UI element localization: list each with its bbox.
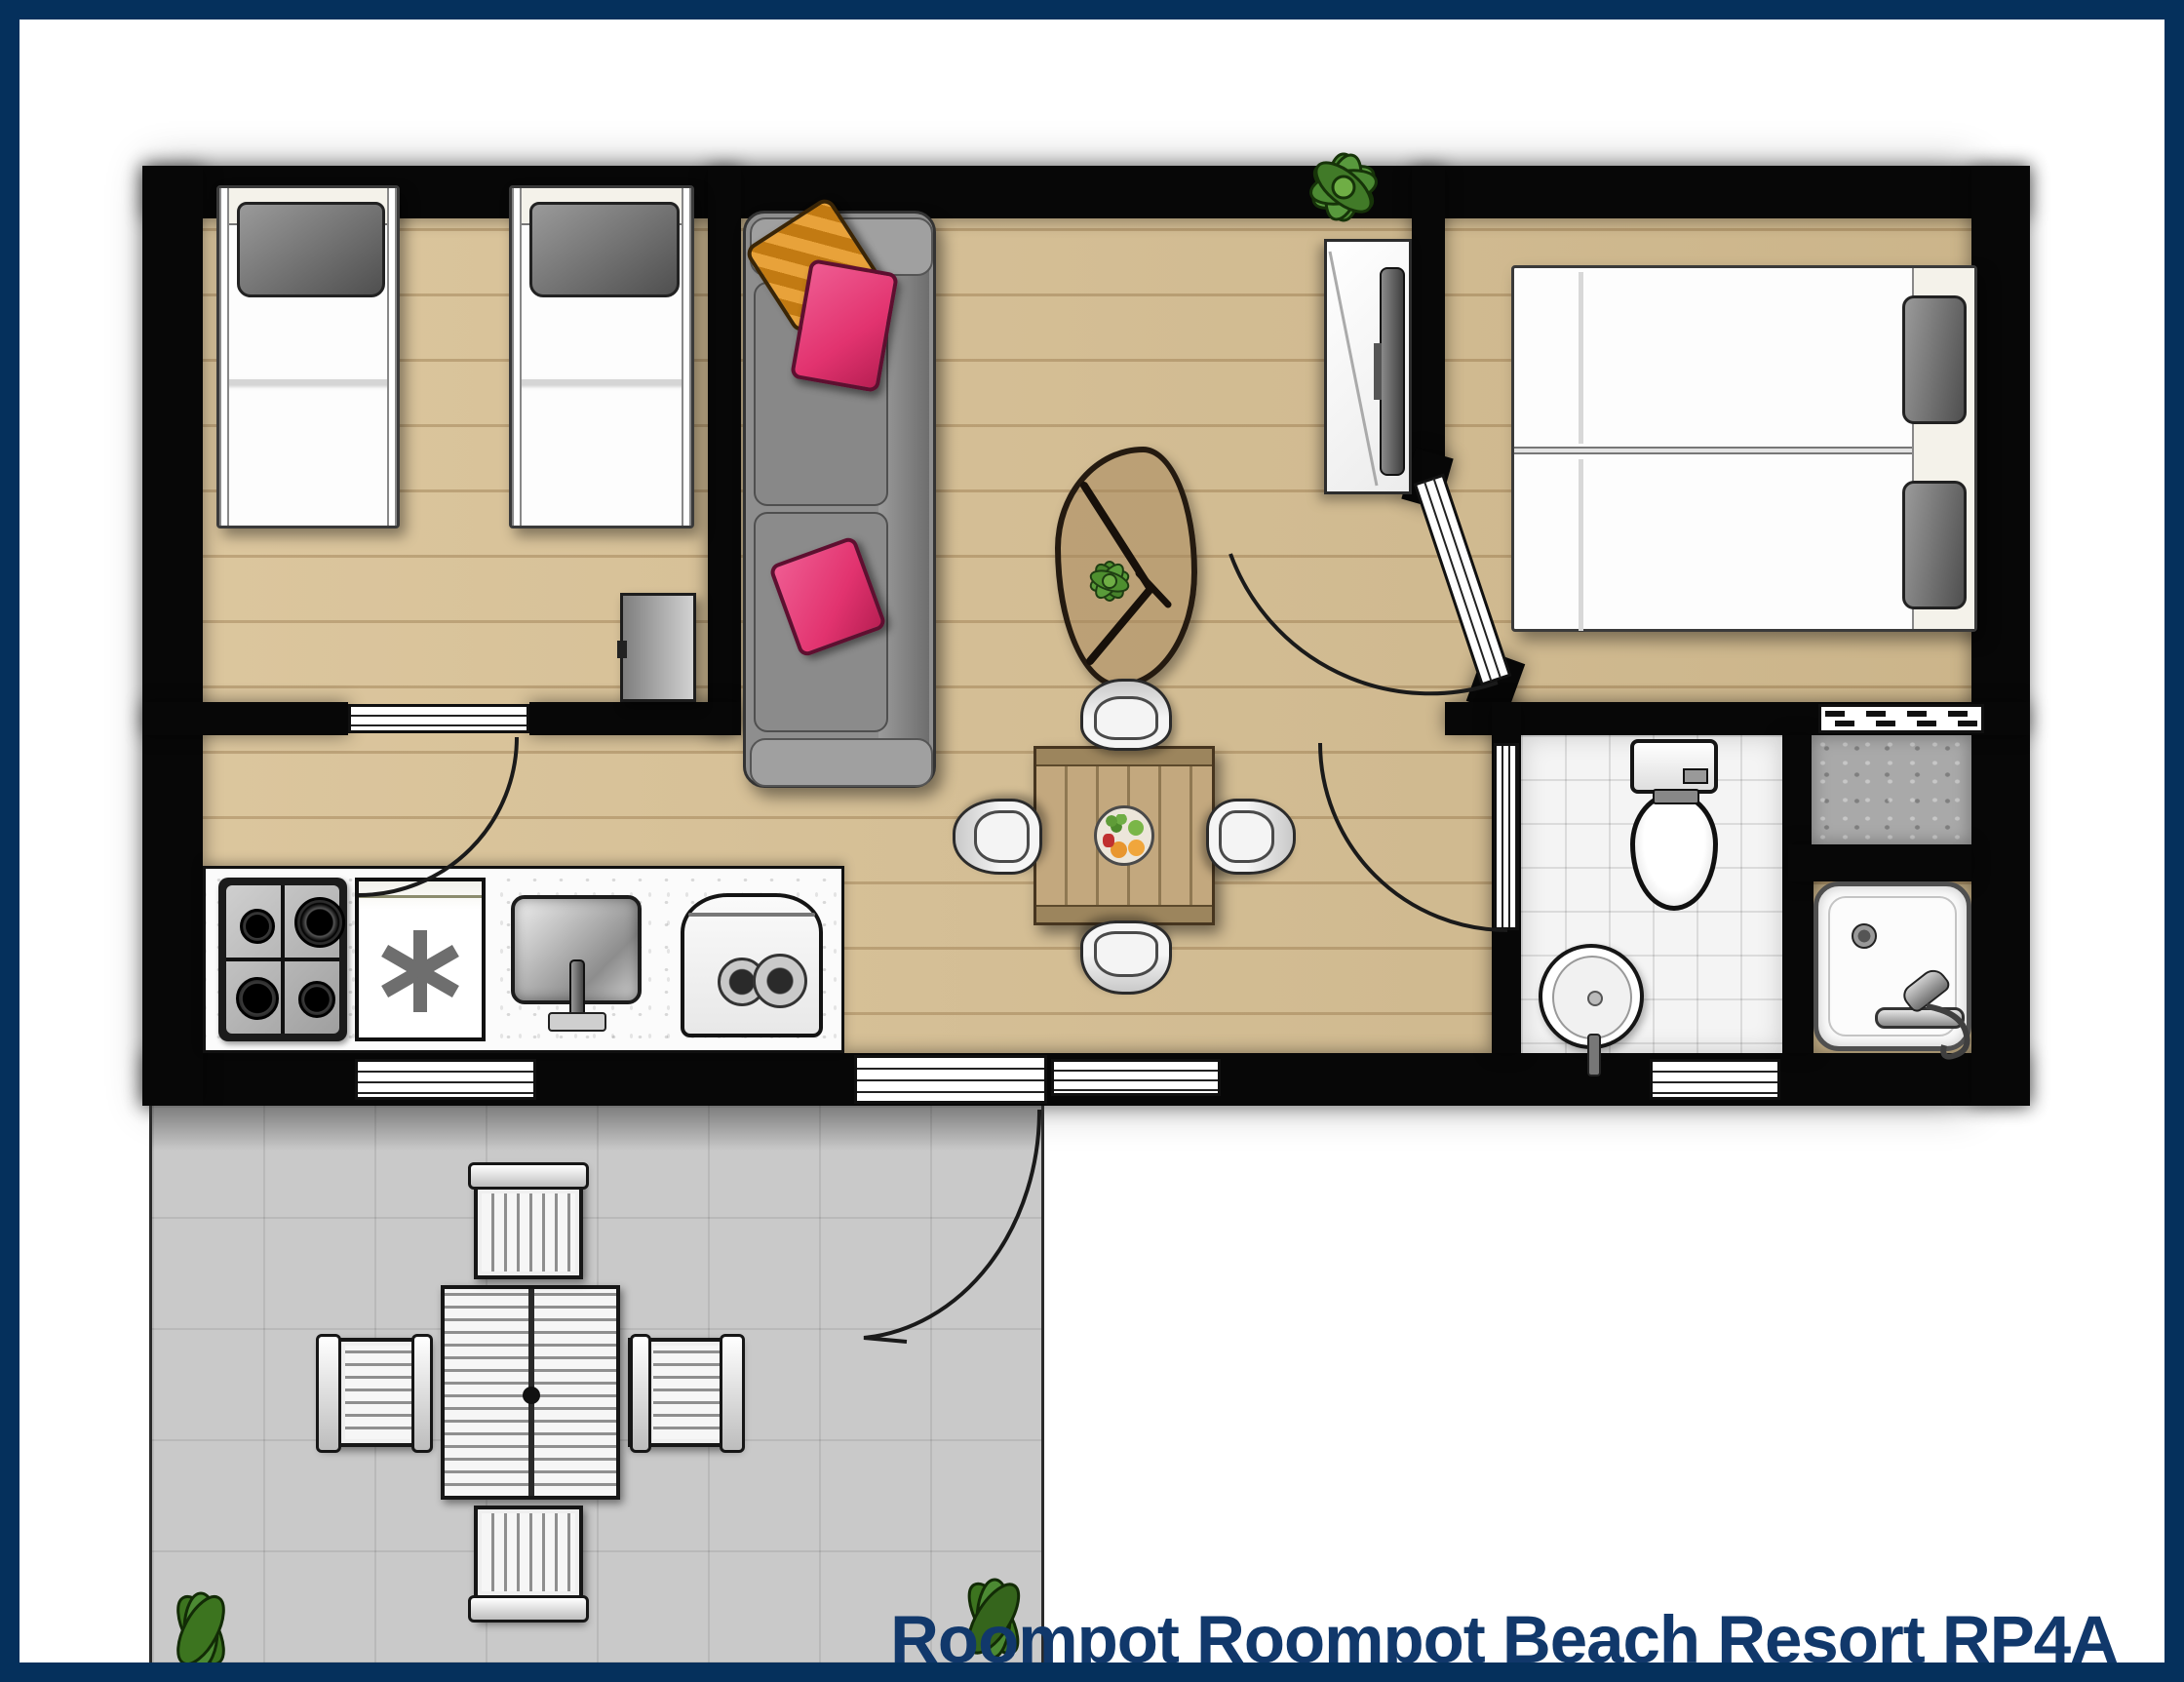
bed2-sheet-fold bbox=[516, 379, 687, 383]
dining-chair-left-seat bbox=[974, 810, 1030, 864]
kitchen-window bbox=[355, 1059, 536, 1100]
toilet-seat-hinge bbox=[1653, 789, 1699, 804]
burner-large-ringed bbox=[294, 897, 345, 948]
garden-chair-right bbox=[628, 1338, 739, 1447]
bed4-pillow bbox=[1902, 481, 1967, 609]
burner-medium-right bbox=[298, 981, 335, 1018]
garden-chair-top-backrest bbox=[468, 1162, 589, 1190]
bedroom1-cabinet bbox=[620, 593, 696, 702]
fruit-grapes bbox=[1105, 814, 1130, 834]
garden-chair-right-backrest bbox=[720, 1334, 745, 1453]
bed4-sheet-fold bbox=[1579, 459, 1583, 631]
double-bed-block bbox=[1511, 265, 1977, 632]
storage-closet-floor bbox=[1812, 735, 1971, 844]
wall-bedroom2-divider bbox=[1412, 166, 1445, 478]
bed-seam bbox=[1514, 447, 1974, 454]
dining-chair-bottom-seat bbox=[1094, 931, 1159, 976]
garden-chair-right-slats bbox=[653, 1346, 727, 1439]
garden-chair-bottom-slats bbox=[482, 1513, 575, 1591]
vent-dashes-row2 bbox=[1835, 721, 1977, 726]
closet-vent-window bbox=[1818, 704, 1984, 733]
dining-chair-top-seat bbox=[1094, 696, 1159, 740]
wall-bedroom1-bottom-right bbox=[529, 702, 741, 735]
bed3-sheet-fold bbox=[1579, 272, 1583, 444]
cabinet-knob bbox=[617, 641, 627, 658]
garden-table bbox=[441, 1285, 620, 1500]
garden-chair-left-armrest bbox=[411, 1334, 433, 1453]
garden-chair-top bbox=[474, 1164, 583, 1279]
toilet-tank bbox=[1630, 739, 1718, 794]
bed1-pillow bbox=[237, 202, 385, 297]
boiler-pipe-right bbox=[753, 954, 807, 1008]
sink-faucet-base bbox=[548, 1012, 606, 1032]
garden-chair-left-backrest bbox=[316, 1334, 341, 1453]
terrace-wall-shadow bbox=[152, 1106, 1041, 1151]
wall-bedroom1-bottom-left bbox=[142, 702, 348, 735]
wall-right bbox=[1971, 166, 2030, 1106]
garden-chair-left bbox=[318, 1338, 429, 1447]
wall-left bbox=[142, 166, 203, 1106]
tv-bracket bbox=[1374, 343, 1382, 400]
gas-hob bbox=[218, 878, 347, 1041]
wall-bedroom1-divider bbox=[708, 166, 741, 735]
wall-shower-left bbox=[1782, 735, 1813, 1053]
wall-top bbox=[142, 166, 2030, 218]
garden-chair-bottom-backrest bbox=[468, 1595, 589, 1623]
tv-screen bbox=[1380, 267, 1405, 476]
dining-table-rail-top bbox=[1036, 749, 1212, 766]
gas-hob-grid-h bbox=[226, 958, 339, 961]
terrace-door-panel bbox=[854, 1055, 1047, 1104]
single-bed-2 bbox=[509, 185, 694, 528]
bed2-rail-left bbox=[512, 188, 522, 526]
garden-chair-bottom bbox=[474, 1506, 583, 1621]
garden-chair-top-slats bbox=[482, 1193, 575, 1271]
fruit-bowl bbox=[1094, 805, 1154, 866]
bed2-rail-right bbox=[682, 188, 691, 526]
freezer bbox=[355, 878, 486, 1041]
terrace-side-window bbox=[1051, 1059, 1221, 1096]
freezer-top-line bbox=[359, 895, 482, 898]
dining-chair-right-seat bbox=[1219, 810, 1274, 864]
bed3-pillow bbox=[1902, 295, 1967, 424]
kitchen-sink-unit bbox=[493, 878, 659, 1041]
dining-chair-left bbox=[953, 799, 1042, 875]
floorplan-canvas: Roompot Roompot Beach Resort RP4A bbox=[0, 0, 2184, 1682]
fruit-apple bbox=[1128, 820, 1144, 836]
bed1-rail-left bbox=[219, 188, 229, 526]
boiler bbox=[681, 893, 823, 1037]
washbasin bbox=[1539, 944, 1644, 1049]
bathroom-door-leaf bbox=[1494, 743, 1519, 930]
burner-small bbox=[240, 909, 275, 944]
wall-closet-bottom bbox=[1788, 844, 1971, 881]
fruit-orange-2 bbox=[1128, 840, 1145, 856]
boiler-cap-line bbox=[688, 913, 815, 917]
garden-chair-right-armrest bbox=[630, 1334, 651, 1453]
dining-chair-bottom bbox=[1080, 920, 1172, 995]
tv-cabinet bbox=[1324, 239, 1412, 494]
bed1-sheet-fold bbox=[223, 379, 393, 383]
burner-medium-left bbox=[236, 977, 279, 1020]
fruit-berries bbox=[1103, 834, 1114, 847]
bed1-rail-right bbox=[387, 188, 397, 526]
washbasin-drain bbox=[1587, 991, 1603, 1006]
single-bed-1 bbox=[216, 185, 400, 528]
dining-chair-top bbox=[1080, 679, 1172, 751]
page-title: Roompot Roompot Beach Resort RP4A bbox=[890, 1601, 2118, 1678]
bathroom-window bbox=[1650, 1059, 1780, 1100]
dining-chair-right bbox=[1206, 799, 1296, 875]
bedroom1-door-leaf bbox=[348, 704, 529, 733]
toilet-flush-button bbox=[1683, 768, 1708, 784]
vent-dashes-row1 bbox=[1825, 711, 1977, 717]
shower-drain bbox=[1852, 923, 1877, 949]
shower-tray bbox=[1813, 881, 1971, 1051]
parasol-hole bbox=[523, 1387, 540, 1404]
washbasin-faucet bbox=[1587, 1034, 1601, 1076]
bed2-pillow bbox=[529, 202, 680, 297]
sofa-armrest-bottom bbox=[750, 738, 933, 787]
